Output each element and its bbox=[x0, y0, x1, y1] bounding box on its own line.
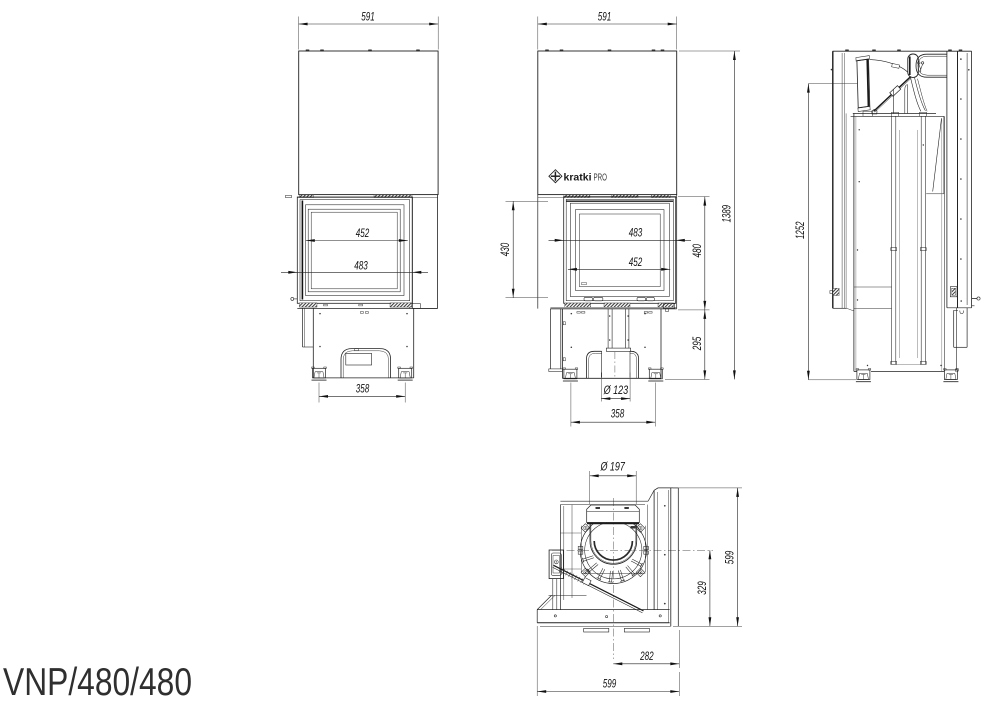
svg-text:358: 358 bbox=[356, 382, 370, 396]
svg-text:480: 480 bbox=[690, 244, 704, 258]
svg-text:599: 599 bbox=[603, 677, 617, 691]
svg-text:599: 599 bbox=[723, 551, 737, 565]
svg-text:VNP/480/480: VNP/480/480 bbox=[3, 661, 192, 704]
svg-text:295: 295 bbox=[690, 337, 704, 351]
svg-text:452: 452 bbox=[629, 255, 643, 269]
svg-text:1252: 1252 bbox=[793, 221, 807, 239]
svg-text:Ø 197: Ø 197 bbox=[600, 459, 626, 473]
svg-text:483: 483 bbox=[354, 259, 368, 273]
svg-text:Ø 123: Ø 123 bbox=[603, 383, 628, 397]
svg-text:430: 430 bbox=[498, 243, 512, 257]
svg-text:282: 282 bbox=[639, 649, 653, 663]
svg-text:329: 329 bbox=[695, 581, 709, 595]
svg-text:591: 591 bbox=[361, 10, 375, 24]
svg-text:452: 452 bbox=[356, 226, 370, 240]
svg-text:483: 483 bbox=[629, 225, 643, 239]
svg-text:1389: 1389 bbox=[719, 205, 733, 223]
svg-text:358: 358 bbox=[611, 407, 625, 421]
svg-text:591: 591 bbox=[598, 10, 612, 24]
svg-text:kratki: kratki bbox=[564, 172, 592, 184]
svg-text:PRO: PRO bbox=[594, 172, 608, 184]
